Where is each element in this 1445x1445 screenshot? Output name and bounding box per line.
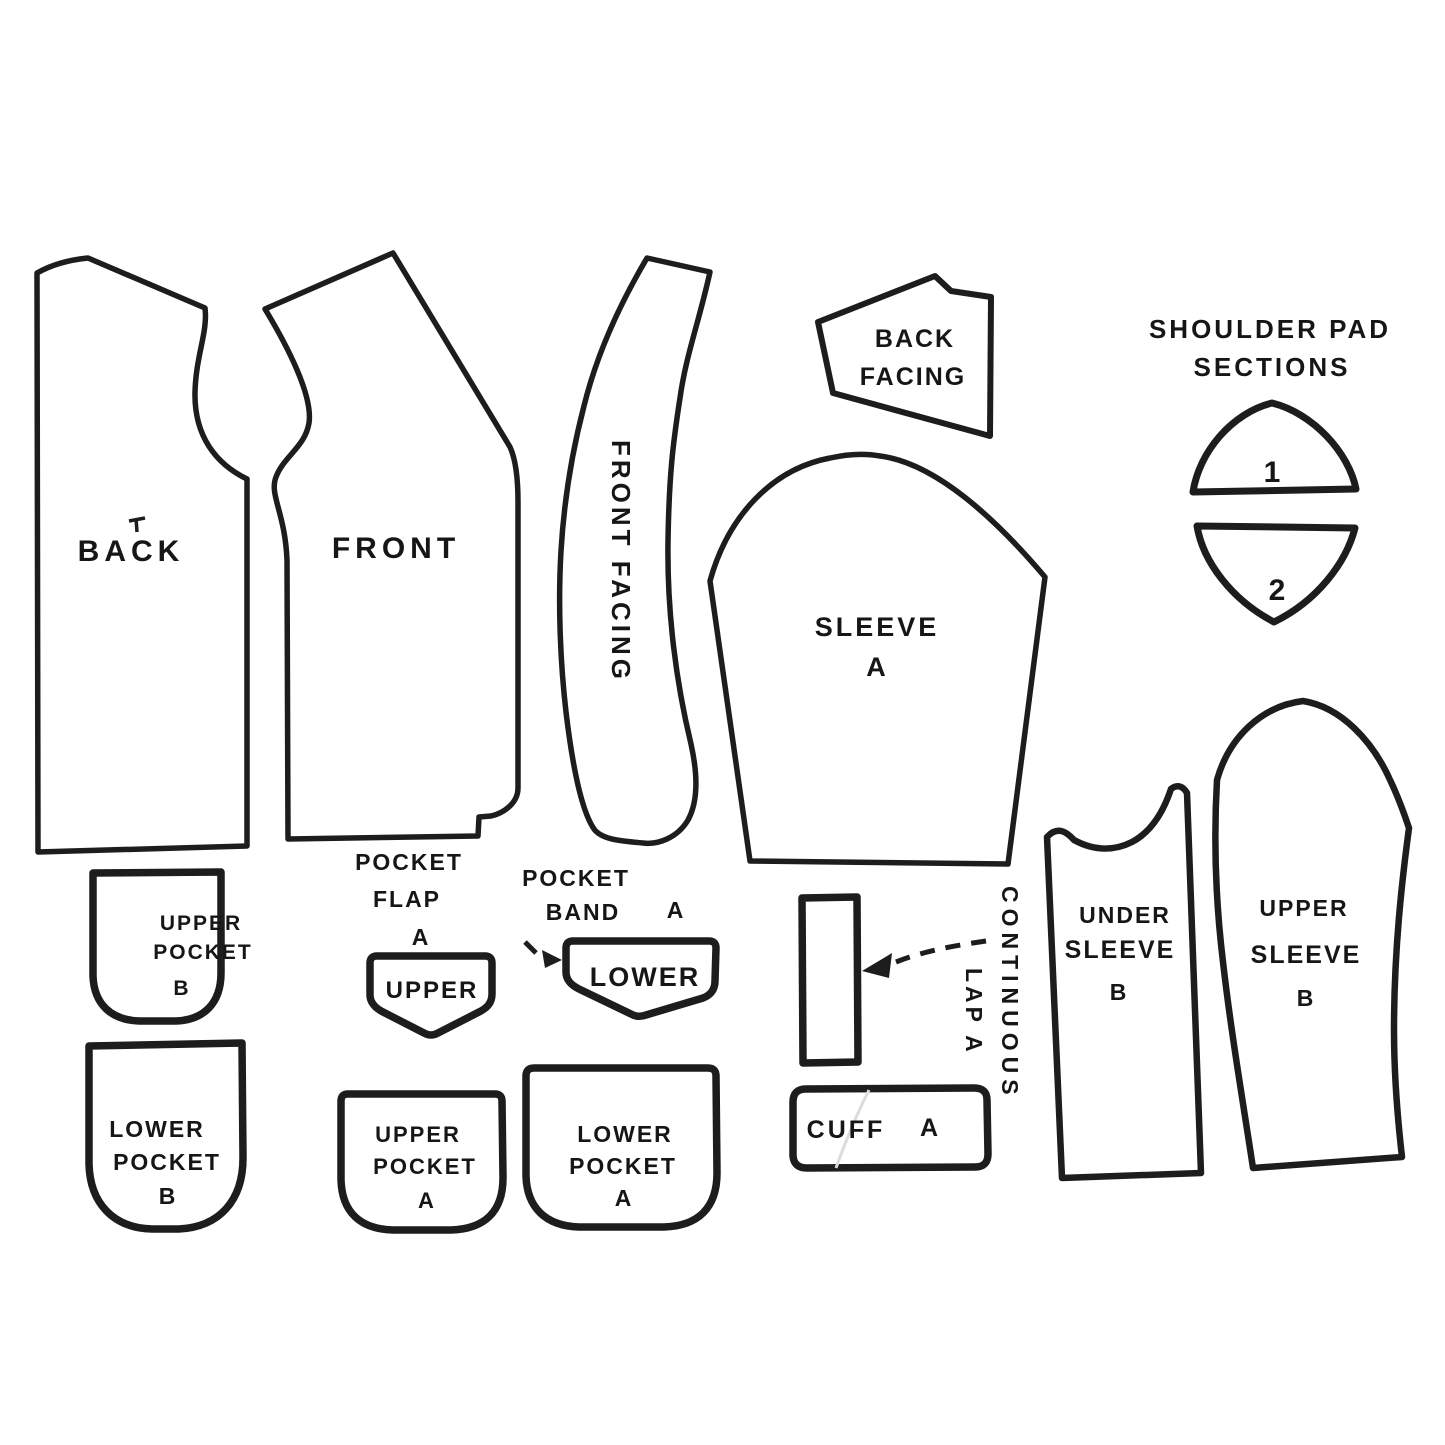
piece-continuous-lap-a: CONTINUOUS LAP A <box>802 886 1023 1101</box>
shoulder-pad-2-number: 2 <box>1269 574 1286 607</box>
sleeve-a-label-line2: A <box>866 652 886 682</box>
piece-sleeve-a: SLEEVE A <box>710 454 1045 864</box>
arrow-to-lower-band-head <box>542 950 562 968</box>
pocket-band-a-caption-word: BAND <box>546 899 620 925</box>
upper-pocket-b-label-line3: B <box>173 977 188 1000</box>
upper-pocket-b-label-line1: UPPER <box>160 912 242 935</box>
back-facing-outline <box>818 276 991 436</box>
lower-pocket-b-label-line3: B <box>159 1183 176 1209</box>
piece-pocket-band-a: POCKET BAND A LOWER <box>522 865 716 1016</box>
continuous-lap-label-line2: LAP A <box>961 968 987 1056</box>
shoulder-pad-1-number: 1 <box>1264 456 1281 489</box>
front-facing-label: FRONT FACING <box>606 440 636 683</box>
pattern-sheet: BACK FRONT FRONT FACING BACK FACING SLEE… <box>0 0 1445 1445</box>
back-facing-label-line1: BACK <box>875 325 955 353</box>
piece-front-facing: FRONT FACING <box>560 258 710 843</box>
arrow-to-lower-band <box>525 942 536 953</box>
upper-pocket-a-label-line2: POCKET <box>373 1154 477 1179</box>
lower-pocket-b-label-line2: POCKET <box>113 1149 221 1175</box>
upper-sleeve-b-label-line1: UPPER <box>1259 895 1348 921</box>
continuous-lap-outline <box>802 897 858 1063</box>
shoulder-pad-title-line1: SHOULDER PAD <box>1149 314 1391 344</box>
pocket-band-a-caption-line1: POCKET <box>522 865 630 891</box>
upper-pocket-a-label-line3: A <box>418 1188 434 1213</box>
piece-pocket-flap-a: POCKET FLAP A UPPER <box>355 849 492 1035</box>
pocket-flap-a-upper-label: UPPER <box>386 977 479 1004</box>
pocket-band-a-lower-label: LOWER <box>590 962 701 992</box>
lower-pocket-a-label-line2: POCKET <box>569 1153 677 1179</box>
piece-back: BACK <box>37 258 247 852</box>
under-sleeve-b-label-line2: SLEEVE <box>1065 936 1176 964</box>
pocket-band-a-caption-letter: A <box>667 897 684 923</box>
arrow-to-lap-piece-head <box>862 953 892 978</box>
upper-sleeve-b-outline <box>1215 701 1409 1168</box>
cuff-a-label-word: CUFF <box>807 1116 886 1144</box>
upper-sleeve-b-label-line2: SLEEVE <box>1251 941 1362 969</box>
pocket-flap-a-caption-line1: POCKET <box>355 849 463 875</box>
upper-pocket-b-label-line2: POCKET <box>153 941 253 964</box>
pocket-flap-a-caption-line3: A <box>412 924 429 950</box>
lower-pocket-b-label-line1: LOWER <box>109 1116 205 1142</box>
piece-under-sleeve-b: UNDER SLEEVE B <box>1047 786 1201 1178</box>
piece-front: FRONT <box>265 253 518 839</box>
under-sleeve-b-label-line3: B <box>1110 979 1127 1005</box>
front-label: FRONT <box>332 532 460 565</box>
piece-cuff-a: CUFF A <box>793 1088 988 1168</box>
lower-pocket-a-label-line3: A <box>615 1185 632 1211</box>
shoulder-pad-title-line2: SECTIONS <box>1194 352 1351 382</box>
sleeve-a-label-line1: SLEEVE <box>815 612 940 642</box>
piece-upper-pocket-b: UPPER POCKET B <box>93 872 253 1021</box>
piece-upper-pocket-a: UPPER POCKET A <box>341 1094 503 1230</box>
cuff-a-label-letter: A <box>920 1114 938 1142</box>
lower-pocket-a-label-line1: LOWER <box>577 1121 673 1147</box>
pocket-flap-a-caption-line2: FLAP <box>373 886 441 912</box>
pattern-layout-diagram: BACK FRONT FRONT FACING BACK FACING SLEE… <box>0 0 1445 1445</box>
piece-back-facing: BACK FACING <box>818 276 991 436</box>
back-facing-label-line2: FACING <box>860 363 966 391</box>
upper-sleeve-b-label-line3: B <box>1297 985 1314 1011</box>
upper-pocket-a-label-line1: UPPER <box>375 1122 461 1147</box>
grain-tick-mark <box>129 518 145 532</box>
piece-lower-pocket-b: LOWER POCKET B <box>89 1043 243 1229</box>
piece-upper-sleeve-b: UPPER SLEEVE B <box>1215 701 1409 1168</box>
piece-lower-pocket-a: LOWER POCKET A <box>526 1068 717 1227</box>
under-sleeve-b-label-line1: UNDER <box>1079 902 1171 928</box>
back-label: BACK <box>78 535 185 568</box>
arrow-to-lap-piece <box>896 941 986 962</box>
continuous-lap-label-line1: CONTINUOUS <box>997 886 1023 1101</box>
shoulder-pad-sections: SHOULDER PAD SECTIONS 1 2 <box>1149 314 1391 622</box>
